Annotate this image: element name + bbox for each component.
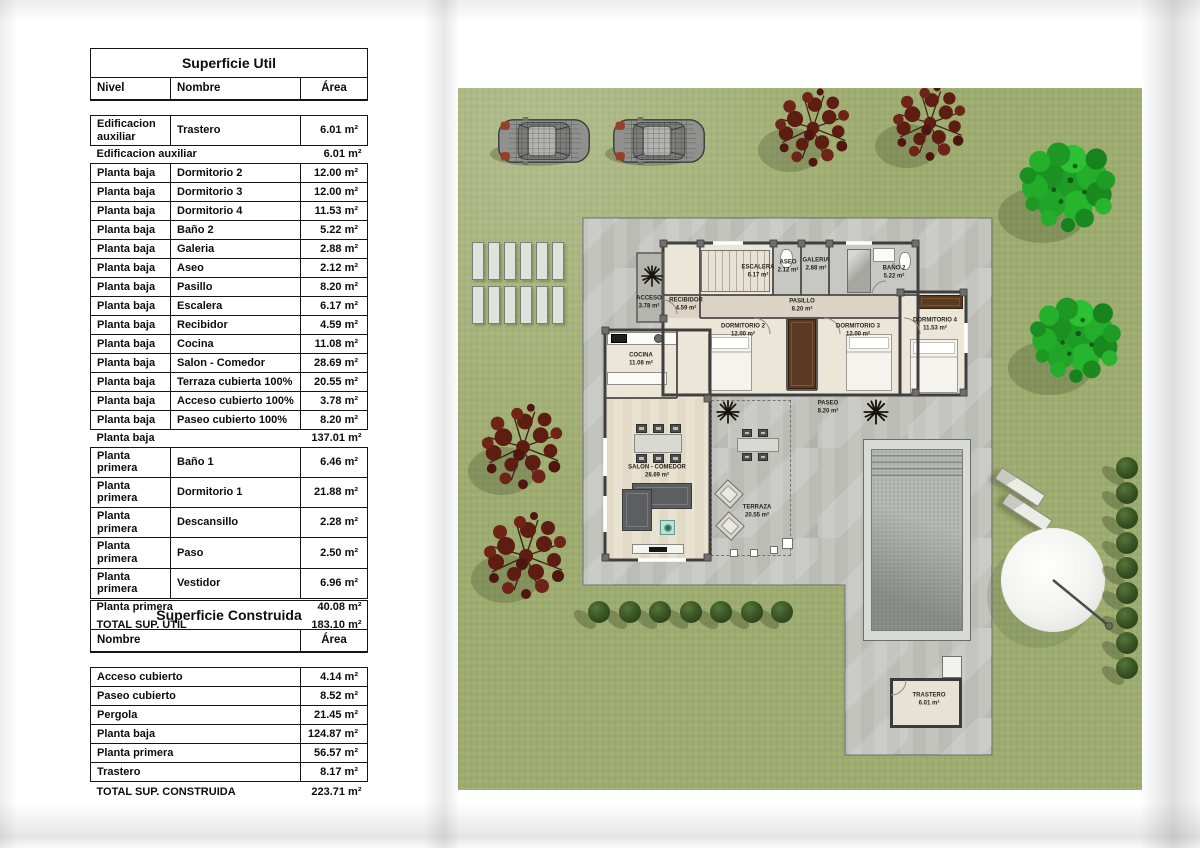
table-row: Planta bajaPaseo cubierto 100%8.20 m² [91, 410, 368, 429]
table-header: NombreÁrea [91, 630, 368, 653]
page-edge-bottom [0, 803, 1200, 848]
table-row: Planta primeraPaso2.50 m² [91, 538, 368, 568]
table-row: Planta primera56.57 m² [91, 744, 368, 763]
table-row: Planta baja124.87 m² [91, 725, 368, 744]
column-header: Nombre [91, 630, 301, 653]
page-edge-left [0, 0, 18, 848]
superficie-util-section: Superficie UtilNivelNombreÁreaEdificacio… [90, 48, 368, 635]
site-plan: ACCESO3.78 m²RECIBIDOR4.59 m²ESCALERA6.1… [458, 88, 1142, 790]
room-label-acceso: ACCESO3.78 m² [636, 296, 662, 311]
room-label-paseo: PASEO8.20 m² [818, 401, 839, 416]
table-row: Planta bajaEscalera6.17 m² [91, 296, 368, 315]
table-row: Planta bajaPasillo8.20 m² [91, 277, 368, 296]
table-row: Planta bajaDormitorio 411.53 m² [91, 201, 368, 220]
table-row: Planta primeraDescansillo2.28 m² [91, 508, 368, 538]
table-row: Pergola21.45 m² [91, 706, 368, 725]
page-fold-shadow [424, 0, 460, 848]
column-header: Nombre [171, 78, 301, 101]
table-row: Planta bajaSalon - Comedor28.69 m² [91, 353, 368, 372]
table-row: Planta bajaRecibidor4.59 m² [91, 315, 368, 334]
table-title: Superficie Construida [91, 601, 368, 630]
room-label-terraza: TERRAZA20.55 m² [743, 505, 772, 520]
room-label-cocina: COCINA11.08 m² [629, 353, 653, 368]
room-label-dormitorio-4: DORMITORIO 411.53 m² [913, 318, 957, 333]
room-labels-layer: ACCESO3.78 m²RECIBIDOR4.59 m²ESCALERA6.1… [458, 88, 1142, 790]
table-row: Planta bajaTerraza cubierta 100%20.55 m² [91, 372, 368, 391]
superficie-construida-table: Superficie ConstruidaNombreÁreaAcceso cu… [90, 600, 368, 801]
room-label-trastero: TRASTERO6.01 m² [913, 693, 946, 708]
table-subtotal-row: Edificacion auxiliar6.01 m² [91, 146, 368, 164]
column-header: Área [301, 78, 368, 101]
page-edge-top [0, 0, 1200, 22]
superficie-util-table: Superficie UtilNivelNombreÁreaEdificacio… [90, 48, 368, 635]
page-edge-right [1140, 0, 1200, 848]
table-row: Trastero8.17 m² [91, 763, 368, 782]
room-label-aseo: ASEO2.12 m² [778, 260, 799, 275]
table-title: Superficie Util [91, 49, 368, 78]
column-header: Nivel [91, 78, 171, 101]
table-row: Paseo cubierto8.52 m² [91, 687, 368, 706]
table-row: Planta bajaCocina11.08 m² [91, 334, 368, 353]
room-label-galeria: GALERIA2.88 m² [803, 258, 830, 273]
room-label-salon-comedor: SALON - COMEDOR28.69 m² [628, 465, 686, 480]
brochure-page: Superficie UtilNivelNombreÁreaEdificacio… [0, 0, 1200, 848]
table-row: Planta bajaDormitorio 312.00 m² [91, 182, 368, 201]
table-row: Planta bajaGaleria2.88 m² [91, 239, 368, 258]
superficie-construida-section: Superficie ConstruidaNombreÁreaAcceso cu… [90, 600, 368, 801]
table-row: Acceso cubierto4.14 m² [91, 668, 368, 687]
table-total-row: TOTAL SUP. CONSTRUIDA223.71 m² [91, 782, 368, 802]
room-label-ba-o-2: BAÑO 25.22 m² [883, 266, 906, 281]
table-row: Planta bajaAcceso cubierto 100%3.78 m² [91, 391, 368, 410]
table-row: Planta bajaAseo2.12 m² [91, 258, 368, 277]
table-row: Edificacion auxiliarTrastero6.01 m² [91, 116, 368, 146]
room-label-dormitorio-3: DORMITORIO 312.00 m² [836, 324, 880, 339]
room-label-recibidor: RECIBIDOR4.59 m² [669, 298, 703, 313]
table-row: Planta bajaDormitorio 212.00 m² [91, 163, 368, 182]
table-row: Planta bajaBaño 25.22 m² [91, 220, 368, 239]
table-header: NivelNombreÁrea [91, 78, 368, 101]
table-row: Planta primeraVestidor6.96 m² [91, 568, 368, 598]
room-label-dormitorio-2: DORMITORIO 212.00 m² [721, 324, 765, 339]
table-row: Planta primeraBaño 16.46 m² [91, 447, 368, 477]
room-label-escalera: ESCALERA6.17 m² [741, 265, 774, 280]
table-subtotal-row: Planta baja137.01 m² [91, 429, 368, 447]
column-header: Área [301, 630, 368, 653]
table-row: Planta primeraDormitorio 121.88 m² [91, 477, 368, 507]
room-label-pasillo: PASILLO8.20 m² [789, 299, 815, 314]
